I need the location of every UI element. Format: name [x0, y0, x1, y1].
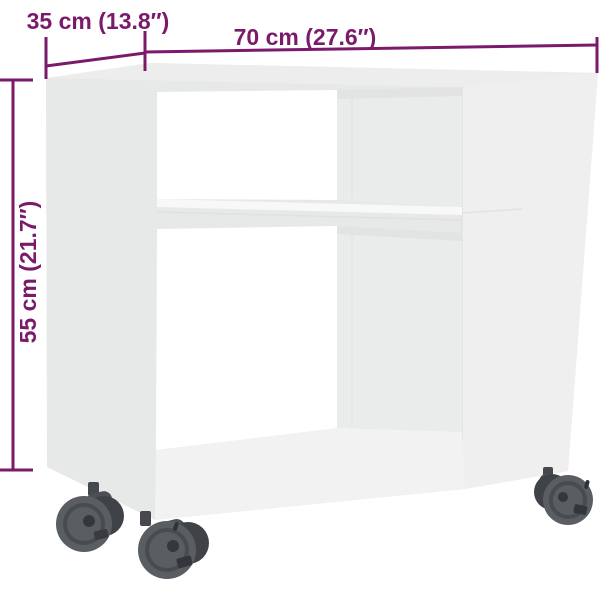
lower-compartment-interior — [337, 226, 462, 432]
right-side-panel — [462, 73, 598, 489]
depth-dimension-line — [46, 53, 145, 66]
width-label: 70 cm (27.6″) — [234, 24, 377, 50]
upper-compartment-interior — [337, 87, 462, 207]
height-label: 55 cm (21.7″) — [15, 201, 41, 344]
caster-wheel-front-left — [138, 511, 209, 579]
upper-compartment-opening — [157, 90, 337, 200]
side-table — [46, 63, 598, 579]
product-dimension-diagram: 35 cm (13.8″) 70 cm (27.6″) 55 cm (21.7″… — [0, 0, 600, 600]
caster-wheel-front-right — [534, 467, 593, 525]
lower-compartment-opening — [156, 226, 337, 450]
depth-label: 35 cm (13.8″) — [27, 8, 170, 34]
diagram-canvas: 35 cm (13.8″) 70 cm (27.6″) 55 cm (21.7″… — [0, 0, 600, 600]
